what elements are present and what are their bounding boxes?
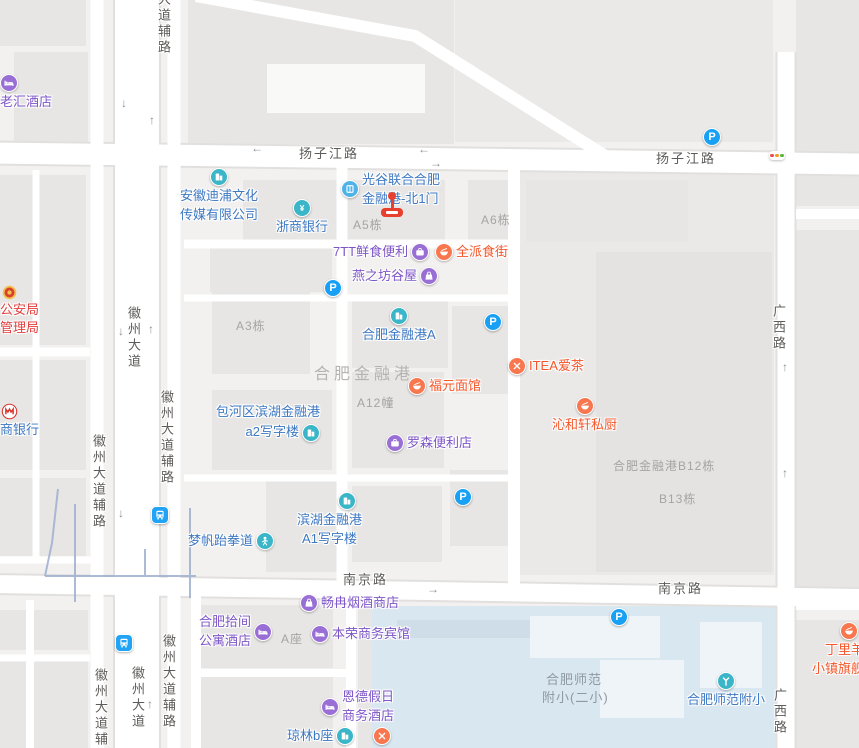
- road-label-guangxi-n: 广西路: [770, 304, 786, 352]
- bus-stop-icon[interactable]: [151, 506, 169, 524]
- road-label-huizhou-avenue-s: 徽州大道: [129, 666, 145, 730]
- poi-label: 小镇旗舰: [812, 661, 859, 678]
- road-arrow: ←: [418, 143, 430, 155]
- road-arrow: ↑: [782, 361, 788, 373]
- road-arrow: ←: [251, 142, 263, 154]
- bus-stop-icon[interactable]: [115, 634, 133, 652]
- poi-qionglin-b[interactable]: 琼林b座: [287, 727, 354, 745]
- road-arrow: ↑: [149, 114, 155, 126]
- road-label-yangzijiang-e: 扬子江路: [656, 152, 716, 167]
- poi-label: 合肥拾间: [199, 614, 251, 631]
- poi-label: 滨湖金融港: [297, 512, 362, 529]
- traffic-light-icon: [769, 151, 785, 160]
- road-label-yangzijiang-w: 扬子江路: [299, 147, 359, 162]
- poi-label: 丁里羊: [825, 642, 859, 659]
- area-label-financial-port: 合肥金融港: [314, 366, 414, 384]
- building-icon: [302, 424, 320, 442]
- poi-mengfan-taekwondo[interactable]: 梦帆跆拳道: [188, 532, 274, 550]
- road-label-huizhou-side-w: 徽州大道辅路: [90, 434, 106, 530]
- building-icon: [338, 492, 356, 510]
- building-label-a12: A12幢: [357, 397, 394, 411]
- bowl-icon: [435, 243, 453, 261]
- poi-itea-tea[interactable]: ITEA爱茶: [508, 357, 584, 375]
- bag-icon: [420, 267, 438, 285]
- building-icon: [390, 307, 408, 325]
- poi-label: 光谷联合合肥: [362, 172, 440, 189]
- poi-laohui-hotel[interactable]: 老汇酒店: [0, 74, 52, 111]
- hotel-bed-icon: [321, 698, 339, 716]
- road-arrow: ↓: [118, 507, 124, 519]
- poi-label: 梦帆跆拳道: [188, 533, 253, 550]
- parking-icon[interactable]: P: [454, 488, 472, 506]
- cmb-logo-icon: [0, 402, 18, 420]
- poi-label: 传媒有限公司: [180, 207, 258, 224]
- road-label-huizhou-side-sw: 徽州大道辅路: [92, 668, 108, 748]
- poi-label: 罗森便利店: [407, 435, 472, 452]
- poi-label: 管理局: [0, 320, 39, 337]
- road-label-nanjing-e: 南京路: [658, 582, 703, 597]
- poi-yanzhifang[interactable]: 燕之坊谷屋: [352, 267, 438, 285]
- road-arrow: →: [430, 157, 442, 169]
- map-canvas[interactable]: ¥: [0, 0, 859, 748]
- road-arrow: ↑: [782, 467, 788, 479]
- poi-label: ITEA爱茶: [529, 358, 584, 375]
- shop-case-icon: [411, 243, 429, 261]
- poi-benrong-hotel[interactable]: 本荣商务宾馆: [311, 625, 410, 643]
- destination-gate-marker[interactable]: [380, 192, 404, 217]
- school-label-line1: 合肥师范: [546, 673, 602, 688]
- poi-financial-port-a[interactable]: 合肥金融港A: [362, 307, 436, 344]
- poi-qinhexuan-kitchen[interactable]: 沁和轩私厨: [552, 397, 617, 434]
- poi-label: 全派食街: [456, 244, 508, 261]
- building-icon: [336, 727, 354, 745]
- poi-label: 安徽迪浦文化: [180, 188, 258, 205]
- poi-label: 琼林b座: [287, 728, 333, 745]
- road-arrow: ↓: [118, 325, 124, 337]
- poi-fuyuan-noodles[interactable]: 福元面馆: [408, 377, 481, 395]
- road-arrow: →: [427, 583, 439, 595]
- road-label-nanjing-w: 南京路: [343, 573, 388, 588]
- poi-label: 畅冉烟酒商店: [321, 595, 399, 612]
- building-label-b12: 合肥金融港B12栋: [613, 460, 715, 474]
- poi-anhui-dipu-company[interactable]: 安徽迪浦文化 传媒有限公司: [180, 168, 258, 224]
- marker-stem: [391, 199, 394, 208]
- poi-label: A1写字楼: [302, 531, 357, 548]
- building-label-a6: A6栋: [481, 214, 511, 228]
- parking-icon[interactable]: P: [324, 279, 342, 297]
- poi-label: 沁和轩私厨: [552, 417, 617, 434]
- hotel-bed-icon: [254, 623, 272, 641]
- parking-icon[interactable]: P: [484, 313, 502, 331]
- poi-changran-tobacco[interactable]: 畅冉烟酒商店: [300, 594, 399, 612]
- poi-label: 恩德假日: [342, 689, 394, 706]
- poi-label: 公寓酒店: [199, 633, 251, 650]
- gate-icon: [341, 180, 359, 198]
- poi-7tt-convenience[interactable]: 7TT鲜食便利: [333, 243, 429, 261]
- road-label-huizhou-side-se: 徽州大道辅路: [160, 634, 176, 730]
- parking-icon[interactable]: P: [703, 128, 721, 146]
- poi-ende-holiday-hotel[interactable]: 恩德假日 商务酒店: [321, 689, 394, 725]
- hotel-bed-icon: [0, 74, 18, 92]
- hotel-bed-icon: [311, 625, 329, 643]
- poi-a1-office[interactable]: 滨湖金融港 A1写字楼: [297, 492, 362, 548]
- utensils-icon: [508, 357, 526, 375]
- poi-police-bureau[interactable]: 公安局 管理局: [0, 283, 39, 337]
- school-label-line2: 附小(二小): [542, 691, 609, 706]
- road-arrow: ↑: [147, 698, 153, 710]
- road-label-guangxi-s: 广西路: [771, 688, 787, 736]
- building-label-a3: A3栋: [236, 320, 266, 334]
- road-label-avenue-side-top: 大道辅路: [155, 0, 171, 56]
- poi-cmb-bank[interactable]: 商银行: [0, 402, 39, 439]
- poi-label: 合肥金融港A: [362, 327, 436, 344]
- utensils-icon: [373, 727, 391, 745]
- poi-label: 商务酒店: [342, 708, 394, 725]
- road-label-huizhou-side-e: 徽州大道辅路: [158, 390, 174, 486]
- poi-dingliyang[interactable]: 丁里羊 小镇旗舰: [812, 622, 859, 678]
- poi-label: 本荣商务宾馆: [332, 626, 410, 643]
- poi-lawson[interactable]: 罗森便利店: [386, 434, 472, 452]
- shop-case-icon: [386, 434, 404, 452]
- poi-label: 公安局: [0, 302, 39, 319]
- road-arrow: ↑: [148, 323, 154, 335]
- police-badge-icon: [0, 283, 18, 301]
- poi-label: 合肥师范附小: [687, 692, 765, 709]
- marker-gate-bar: [381, 208, 403, 217]
- poi-label: 老汇酒店: [0, 94, 52, 111]
- poi-label: 商银行: [0, 422, 39, 439]
- road-label-huizhou-avenue: 徽州大道: [125, 306, 141, 370]
- yen-icon: [293, 199, 311, 217]
- company-building-icon: [210, 168, 228, 186]
- poi-normal-school-primary[interactable]: 合肥师范附小: [687, 672, 765, 709]
- building-label-b13: B13栋: [659, 493, 696, 507]
- bag-icon: [300, 594, 318, 612]
- parking-icon[interactable]: P: [610, 608, 628, 626]
- poi-a2-office[interactable]: 包河区滨湖金融港 a2写字楼: [216, 404, 320, 442]
- bowl-icon: [840, 622, 858, 640]
- bowl-icon: [576, 397, 594, 415]
- poi-label: 浙商银行: [276, 219, 328, 236]
- poi-zheshang-bank[interactable]: 浙商银行: [276, 199, 328, 236]
- poi-label: 包河区滨湖金融港: [216, 404, 320, 421]
- bowl-icon: [408, 377, 426, 395]
- person-icon: [256, 532, 274, 550]
- poi-label: 福元面馆: [429, 378, 481, 395]
- poi-label: 7TT鲜食便利: [333, 244, 408, 261]
- poi-quanpai-food-street[interactable]: 全派食街: [435, 243, 508, 261]
- road-arrow: ↓: [121, 97, 127, 109]
- tree-icon: [717, 672, 735, 690]
- poi-label: 燕之坊谷屋: [352, 268, 417, 285]
- poi-shijian-apartment-hotel[interactable]: 合肥拾间 公寓酒店: [199, 614, 272, 650]
- poi-restaurant-icon[interactable]: [373, 727, 391, 745]
- building-label-a-block: A座: [281, 633, 303, 647]
- poi-label: a2写字楼: [246, 424, 299, 441]
- building-label-a5: A5栋: [353, 219, 383, 233]
